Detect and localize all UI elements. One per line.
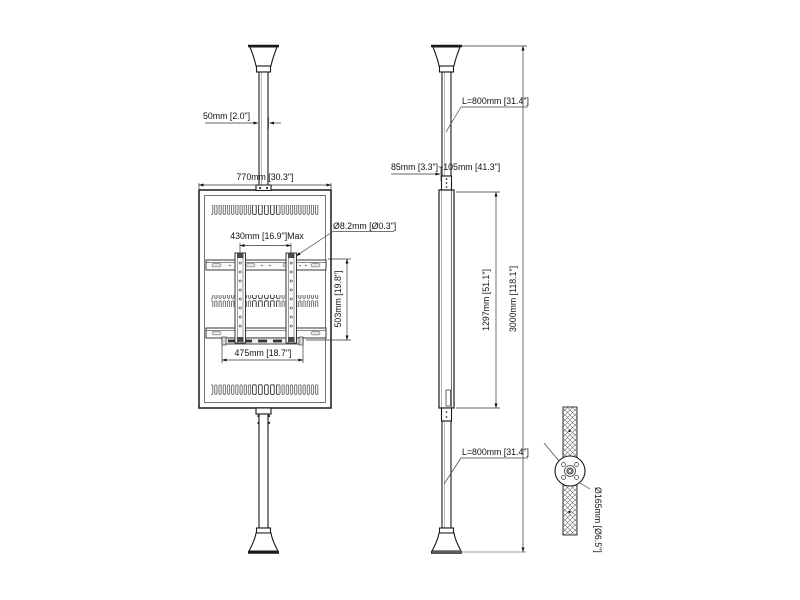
technical-drawing-canvas: 50mm [2.0"] 770mm [30.3"] 430mm [16.9"]M… [0,0,800,600]
front-lower-pole [259,414,268,528]
front-floor-trumpet [248,528,279,553]
dim-display-width-label: 770mm [30.3"] [237,172,294,182]
side-view: L=800mm [31.4"] 85mm [3.3"]~105mm [41.3"… [391,46,529,553]
upper-mounting-rail [206,260,326,270]
flange-detail: Ø165mm [Ø6.5"] [544,407,603,553]
dim-hole-pitch-label: 430mm [16.9"]Max [230,231,304,241]
dim-adjust-range-label: 85mm [3.3"]~105mm [41.3"] [391,162,500,172]
dim-total-height: 3000mm [118.1"] [462,46,527,552]
right-vertical-bracket [286,253,297,343]
dim-panel-height: 1297mm [51.1"] [456,192,500,408]
dim-lower-pole-length-label: L=800mm [31.4"] [462,447,529,457]
flange-leader-line [544,443,559,461]
dim-pole-width-label: 50mm [2.0"] [203,111,250,121]
lower-mounting-rail [206,328,326,338]
front-display-panel [199,190,331,408]
front-ceiling-trumpet [248,46,279,72]
side-top-adjuster [442,176,452,190]
front-view: 50mm [2.0"] 770mm [30.3"] 430mm [16.9"]M… [199,46,396,553]
dim-flange-diameter: Ø165mm [Ø6.5"] [580,483,603,553]
side-floor-trumpet [431,528,462,553]
side-upper-pole [442,72,451,176]
left-vertical-bracket [235,253,246,343]
dim-flange-diameter-label: Ø165mm [Ø6.5"] [593,487,603,553]
flange-plate [555,456,585,486]
dim-lower-pole-length: L=800mm [31.4"] [444,447,529,484]
side-display-slab [439,190,454,408]
dim-total-height-label: 3000mm [118.1"] [508,266,518,332]
dim-panel-height-label: 1297mm [51.1"] [481,269,491,331]
dim-upper-pole-length: L=800mm [31.4"] [446,96,529,132]
dim-pole-width: 50mm [2.0"] [203,111,281,129]
side-ceiling-trumpet [431,46,462,72]
side-bottom-adjuster [442,408,452,421]
dim-rail-width: 475mm [18.7"] [222,345,303,363]
front-top-connector [256,185,271,191]
dim-upper-pole-length-label: L=800mm [31.4"] [462,96,529,106]
drawing-svg: 50mm [2.0"] 770mm [30.3"] 430mm [16.9"]M… [0,0,800,600]
dim-bracket-height-label: 503mm [19.8"] [333,271,343,328]
dim-rail-width-label: 475mm [18.7"] [235,348,292,358]
dim-hole-diameter-label: Ø8.2mm [Ø0.3"] [333,221,396,231]
side-lower-pole [442,421,451,528]
